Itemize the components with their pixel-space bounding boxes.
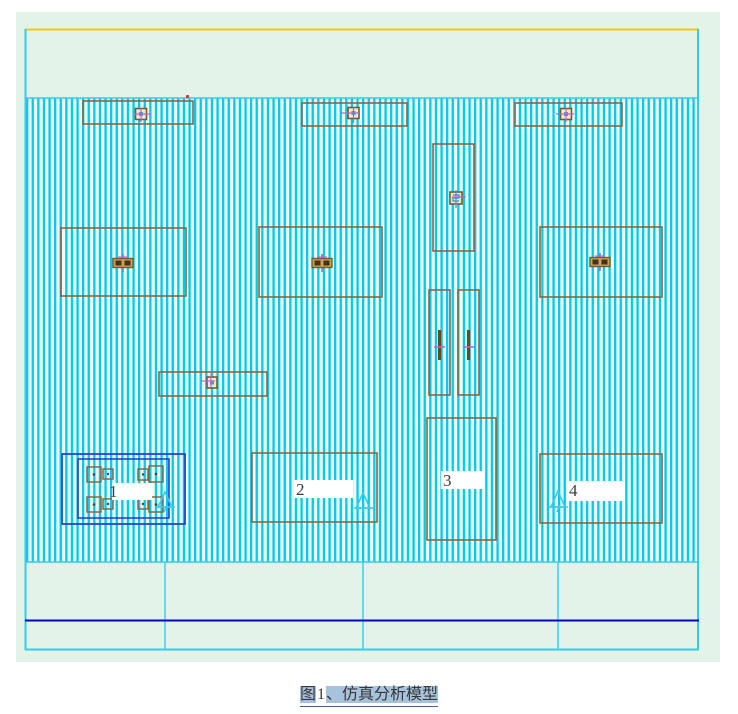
area-2-label: 2 (296, 481, 305, 498)
caption-number: 1 (316, 686, 326, 703)
red-dot-marker (186, 95, 189, 98)
figure-caption-text: 图1、仿真分析模型 (300, 683, 438, 707)
area-1-label-patch (112, 483, 152, 500)
caption-suffix: 、仿真分析模型 (326, 686, 438, 703)
figure-caption: 图1、仿真分析模型 (0, 683, 738, 707)
cad-drawing-canvas (0, 0, 738, 714)
caption-prefix: 图 (300, 686, 316, 703)
simulation-model-figure: 1 2 3 4 图1、仿真分析模型 (0, 0, 738, 714)
area-1-label: 1 (109, 483, 118, 500)
area-4-label: 4 (569, 482, 578, 499)
area-3-label: 3 (443, 472, 452, 489)
